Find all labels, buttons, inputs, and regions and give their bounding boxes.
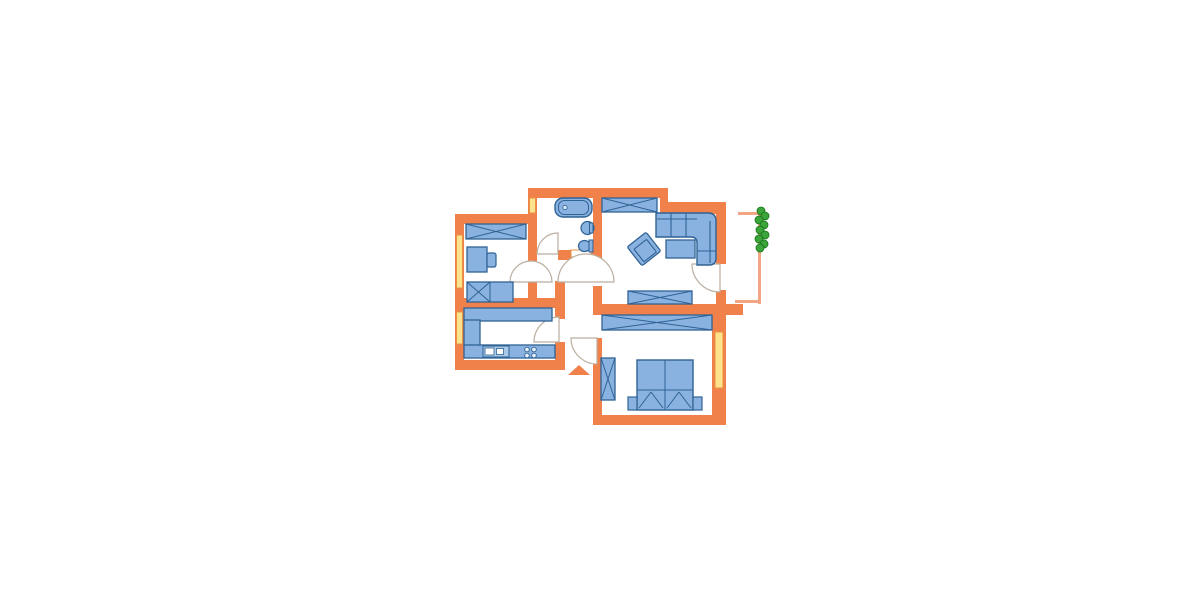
toilet-tank xyxy=(589,240,593,252)
children-wardrobe xyxy=(466,224,526,239)
wall-children-top xyxy=(455,214,537,224)
entrance-arrow xyxy=(568,365,590,375)
double-bed xyxy=(637,360,693,410)
stove-burner-3 xyxy=(525,353,530,358)
bedroom-wardrobe-tall xyxy=(601,358,615,400)
floor-plan-svg xyxy=(0,0,1200,600)
window-children xyxy=(457,235,463,288)
wall-children-right-upper xyxy=(528,224,537,261)
door-swing-bedroom xyxy=(571,338,597,364)
coffee-table xyxy=(666,240,695,258)
kitchen-sink-basin-2 xyxy=(497,349,504,355)
bedroom-wardrobe-long xyxy=(602,315,712,330)
balcony-plant-9 xyxy=(756,244,764,252)
wall-kitchen-right-upper xyxy=(555,281,565,319)
window-bedroom xyxy=(715,332,723,388)
children-desk xyxy=(467,247,487,272)
wall-bathroom-top xyxy=(528,188,668,198)
nightstand-right xyxy=(693,397,702,410)
window-kitchen xyxy=(457,312,463,344)
living-sideboard xyxy=(628,291,692,304)
door-swing-bathroom xyxy=(537,233,558,254)
stove-burner-1 xyxy=(525,347,530,352)
kitchen-counter-left xyxy=(464,320,480,346)
washbasin-pedestal xyxy=(590,223,594,233)
children-single-bed xyxy=(467,282,513,302)
door-swing-balcony xyxy=(692,264,720,292)
children-desk-chair xyxy=(487,253,496,267)
balcony-railing-bottom xyxy=(735,300,761,303)
bathtub-drain xyxy=(563,205,567,209)
nightstand-left xyxy=(628,397,637,410)
wall-kitchen-right-lower xyxy=(555,342,565,370)
stove-burner-2 xyxy=(532,347,537,352)
floor-plan-page xyxy=(0,0,1200,600)
window-bathroom xyxy=(530,198,536,213)
kitchen-sink-basin-1 xyxy=(485,348,494,355)
wall-living-left-lower xyxy=(593,286,602,304)
wall-bedroom-bottom xyxy=(593,415,726,425)
kitchen-counter-top xyxy=(464,308,552,321)
living-wardrobe xyxy=(602,198,657,212)
wall-children-right-lower xyxy=(528,281,537,300)
stove-burner-4 xyxy=(532,353,537,358)
door-swing-children-room xyxy=(510,261,552,282)
wall-kitchen-bottom xyxy=(455,360,565,370)
wall-living-right-upper xyxy=(716,212,726,264)
